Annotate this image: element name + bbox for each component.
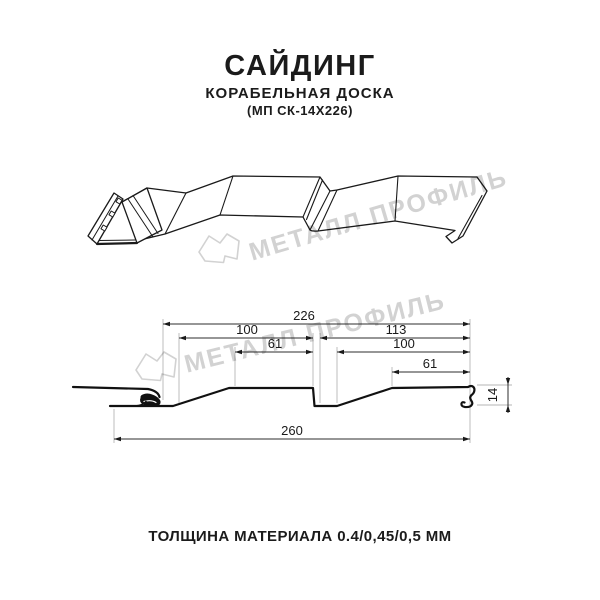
cross-section-drawing: 226 100 113 61 — [73, 308, 512, 443]
dimension-100-left: 100 — [179, 322, 313, 340]
dimension-14: 14 — [485, 377, 510, 413]
dim-label-113: 113 — [386, 322, 407, 337]
dimension-260: 260 — [114, 423, 470, 441]
panel-3d-body — [122, 176, 487, 243]
dim-label-100-left: 100 — [236, 322, 258, 337]
profile-3d-drawing — [88, 176, 487, 244]
section-profile — [73, 386, 474, 407]
material-thickness-note: ТОЛЩИНА МАТЕРИАЛА 0.4/0,45/0,5 ММ — [0, 528, 600, 545]
bottom-hem-edge — [97, 243, 137, 244]
section-main-profile — [110, 386, 474, 407]
dim-label-260: 260 — [281, 423, 303, 438]
technical-drawing-canvas: 226 100 113 61 — [0, 0, 600, 600]
dim-label-14: 14 — [485, 388, 500, 402]
nail-flange-hem — [92, 196, 118, 240]
dimension-100-right: 100 — [337, 336, 470, 354]
dim-label-226: 226 — [293, 308, 315, 323]
dimension-61-left: 61 — [235, 336, 313, 354]
dim-label-100-right: 100 — [393, 336, 415, 351]
bottom-hem-inner — [99, 240, 135, 241]
dimension-61-right: 61 — [392, 356, 470, 374]
dim-label-61-left: 61 — [268, 336, 282, 351]
dimension-226: 226 — [163, 308, 470, 326]
dim-label-61-right: 61 — [423, 356, 437, 371]
product-diagram-page: САЙДИНГ КОРАБЕЛЬНАЯ ДОСКА (МП СК-14Х226) — [0, 0, 600, 600]
